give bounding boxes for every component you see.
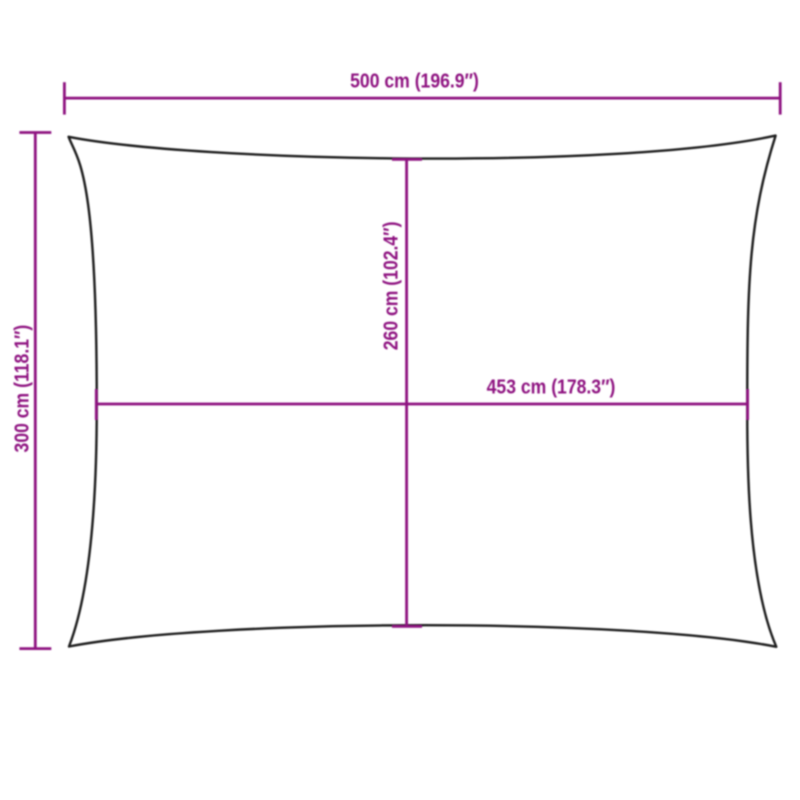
svg-text:300 cm (118.1″): 300 cm (118.1″)	[10, 325, 32, 453]
svg-text:260 cm (102.4″): 260 cm (102.4″)	[379, 222, 401, 351]
svg-text:453 cm (178.3″): 453 cm (178.3″)	[487, 375, 616, 397]
svg-text:500 cm (196.9″): 500 cm (196.9″)	[350, 70, 479, 92]
